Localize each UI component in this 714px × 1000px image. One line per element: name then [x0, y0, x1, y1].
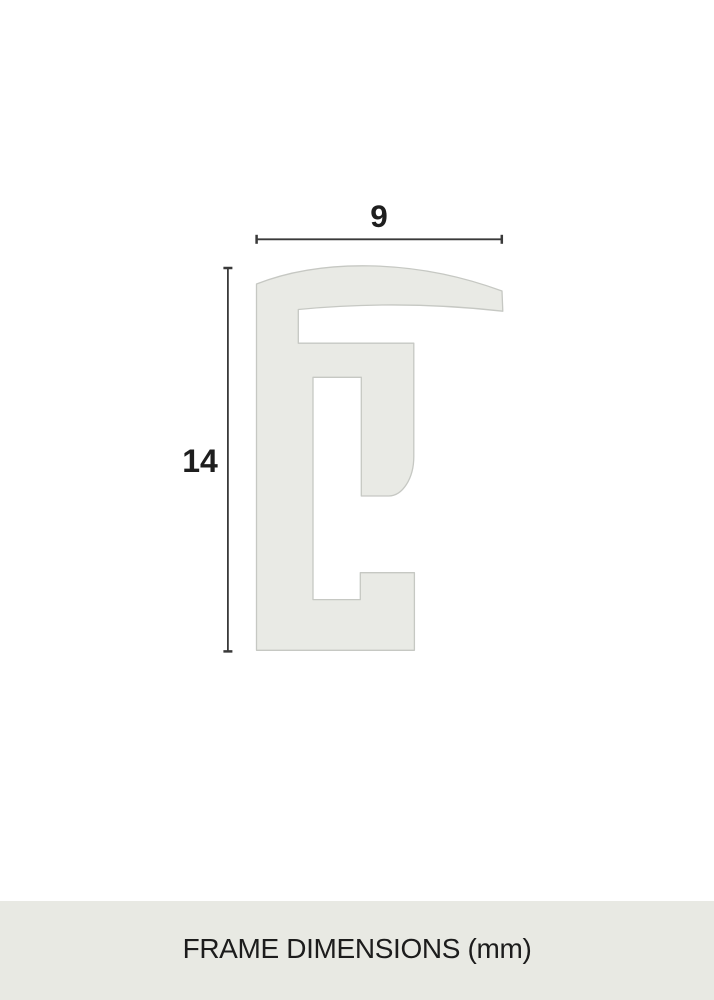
svg-text:9: 9: [370, 198, 388, 234]
svg-text:FRAME DIMENSIONS (mm): FRAME DIMENSIONS (mm): [183, 933, 532, 964]
svg-text:14: 14: [182, 443, 218, 479]
